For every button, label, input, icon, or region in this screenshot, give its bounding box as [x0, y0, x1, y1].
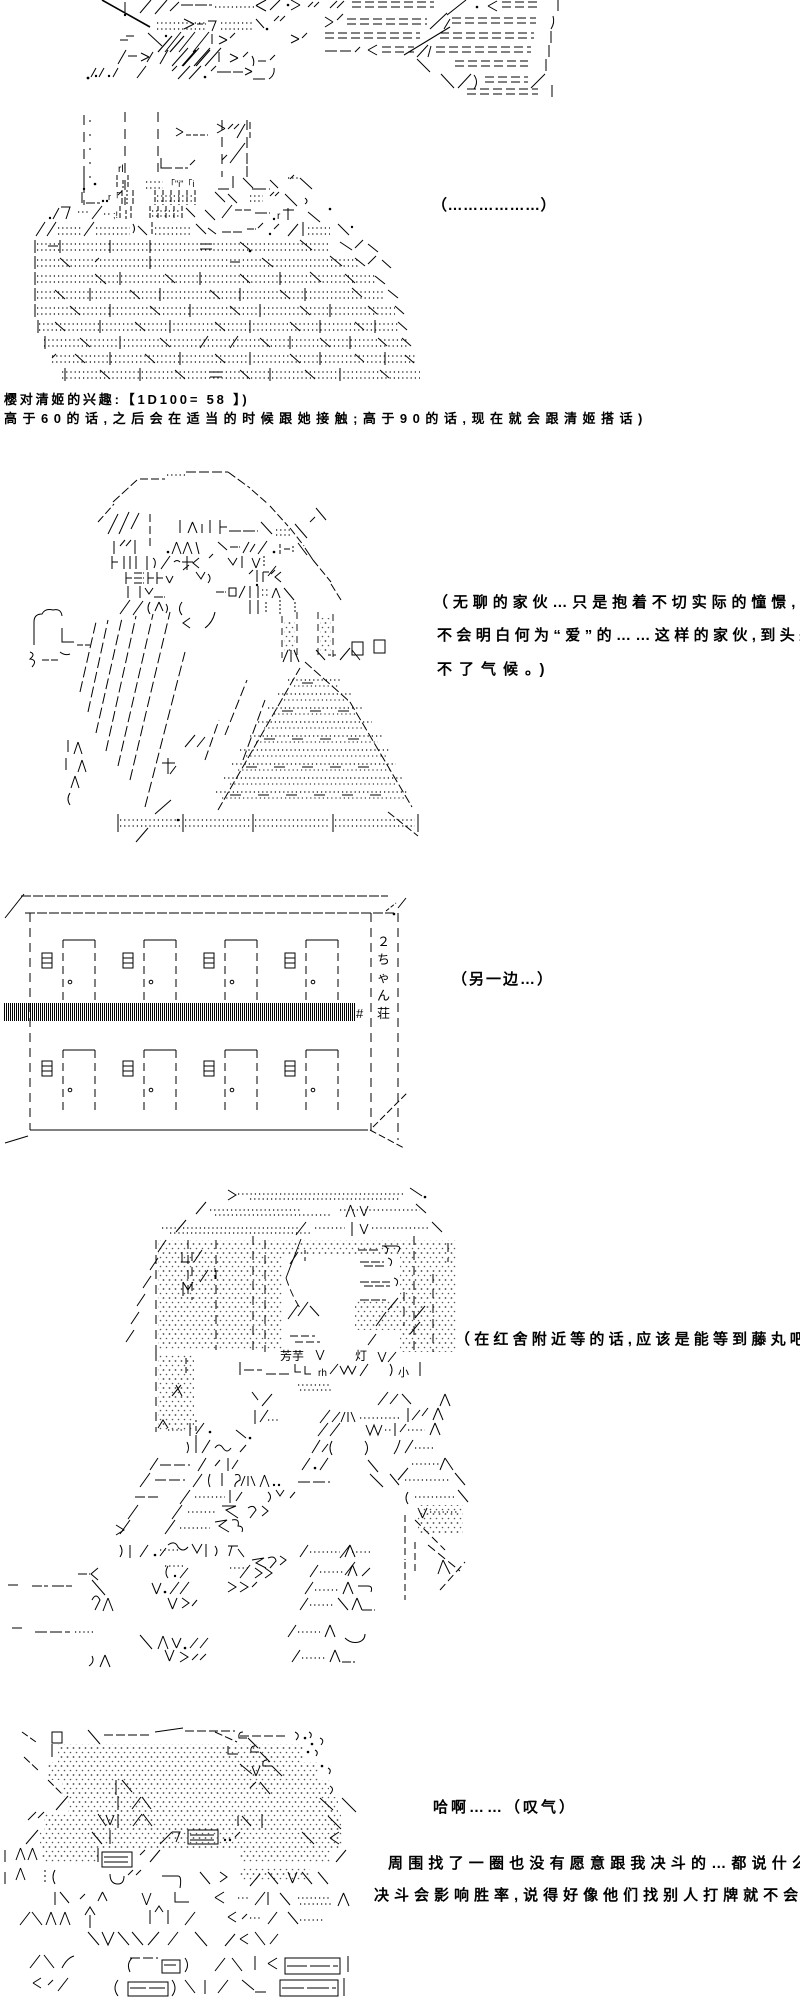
svg-text:灯: 灯 — [355, 1349, 367, 1363]
svg-text:#: # — [356, 1006, 364, 1021]
svg-text:rh: rh — [318, 1368, 327, 1379]
svg-text:ゃ: ゃ — [377, 970, 390, 985]
svg-text:;!: ;! — [113, 210, 118, 220]
svg-text:r「: r「 — [108, 192, 120, 202]
svg-text:ん: ん — [377, 988, 390, 1003]
svg-text:ち: ち — [377, 952, 390, 967]
svg-text:r: r — [277, 211, 281, 222]
svg-text:rl: rl — [118, 164, 124, 175]
svg-text:２: ２ — [377, 934, 390, 949]
svg-text:小: 小 — [398, 1366, 409, 1379]
svg-text:芳芋: 芳芋 — [280, 1349, 304, 1363]
svg-text:荘: 荘 — [377, 1006, 390, 1021]
svg-text:「"i"「i: 「"i"「i — [166, 179, 194, 189]
